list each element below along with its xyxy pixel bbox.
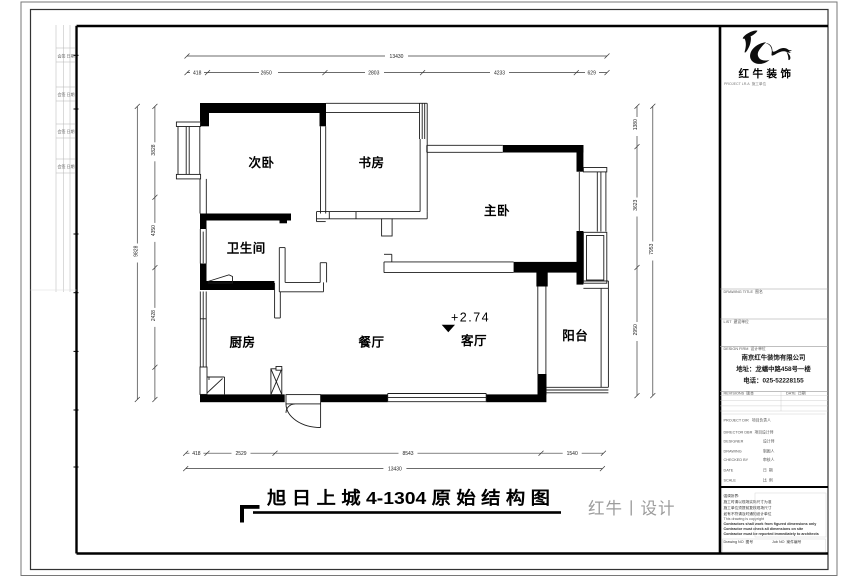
svg-text:2529: 2529 [235, 451, 246, 457]
svg-text:LIST 建设单位: LIST 建设单位 [724, 319, 750, 324]
svg-text:设计师: 设计师 [763, 439, 775, 444]
svg-text:+2.74: +2.74 [451, 311, 490, 325]
svg-text:日期: 日期 [67, 163, 75, 169]
svg-text:PROJECT LR.A 施工单位: PROJECT LR.A 施工单位 [724, 81, 766, 86]
svg-text:日期: 日期 [67, 91, 75, 97]
svg-text:红牛装饰: 红牛装饰 [739, 67, 795, 80]
svg-text:主卧: 主卧 [484, 203, 510, 218]
svg-text:制图人: 制图人 [763, 449, 775, 454]
svg-text:强调所界:: 强调所界: [724, 493, 740, 498]
svg-text:日期: 日期 [67, 128, 75, 134]
svg-text:施工时请以现场实际尺寸为准: 施工时请以现场实际尺寸为准 [724, 499, 772, 504]
svg-text:13430: 13430 [390, 54, 404, 60]
svg-text:日 期: 日 期 [763, 468, 773, 473]
svg-text:2950: 2950 [633, 324, 639, 335]
svg-text:阳台: 阳台 [562, 328, 588, 343]
svg-text:DRAWING TITLE 图名: DRAWING TITLE 图名 [724, 289, 763, 294]
svg-text:2803: 2803 [368, 71, 379, 77]
svg-text:418: 418 [193, 71, 202, 77]
svg-text:厨房: 厨房 [229, 335, 255, 350]
svg-text:DATE 日期: DATE 日期 [786, 390, 806, 395]
svg-text:DESIGN FIRM 设计单位: DESIGN FIRM 设计单位 [724, 346, 766, 351]
svg-text:2650: 2650 [261, 71, 272, 77]
svg-text:日期: 日期 [67, 53, 75, 59]
svg-text:13430: 13430 [388, 467, 402, 473]
svg-text:比 例: 比 例 [763, 478, 773, 483]
svg-text:施工单位须提前复核现场尺寸: 施工单位须提前复核现场尺寸 [724, 505, 772, 510]
svg-text:This drawing is copyright: This drawing is copyright [724, 517, 765, 521]
svg-text:卫生间: 卫生间 [227, 241, 266, 256]
svg-text:会签: 会签 [58, 128, 66, 134]
svg-text:CHECKED BY: CHECKED BY [724, 458, 749, 462]
svg-text:红牛丨设计: 红牛丨设计 [588, 499, 676, 518]
svg-text:3828: 3828 [151, 144, 157, 155]
svg-text:2428: 2428 [151, 310, 157, 321]
svg-text:地址：龙蟠中路458号一楼: 地址：龙蟠中路458号一楼 [736, 364, 811, 373]
svg-text:4350: 4350 [151, 225, 157, 236]
svg-text:如有不符请及时通知设计单位: 如有不符请及时通知设计单位 [724, 511, 772, 516]
svg-text:会签: 会签 [58, 53, 66, 59]
svg-text:SCALE: SCALE [724, 479, 737, 483]
svg-text:DESIGNER: DESIGNER [724, 440, 744, 444]
svg-text:PROJECT DIR 项目负责人: PROJECT DIR 项目负责人 [724, 418, 772, 423]
svg-text:餐厅: 餐厅 [357, 335, 384, 350]
svg-text:DATE: DATE [724, 469, 734, 473]
svg-text:1380: 1380 [633, 119, 639, 130]
svg-text:Job NO 案件编号: Job NO 案件编号 [772, 539, 802, 544]
svg-text:客厅: 客厅 [460, 333, 487, 348]
svg-text:REVISIONS 版本: REVISIONS 版本 [724, 390, 755, 395]
svg-text:旭 日 上 城 4-1304 原 始 结 构 图: 旭 日 上 城 4-1304 原 始 结 构 图 [266, 488, 550, 508]
svg-text:8543: 8543 [402, 451, 413, 457]
svg-text:DIRECTOR DBR 项目设计师: DIRECTOR DBR 项目设计师 [724, 430, 774, 435]
svg-text:审核人: 审核人 [763, 457, 775, 462]
svg-text:DRAWING: DRAWING [724, 450, 742, 454]
svg-text:次卧: 次卧 [248, 155, 274, 170]
svg-text:会签: 会签 [58, 163, 66, 169]
svg-text:1540: 1540 [567, 451, 578, 457]
svg-text:629: 629 [588, 71, 597, 77]
svg-text:Contractor must check all dime: Contractor must check all dimensions on … [724, 527, 804, 531]
svg-text:电话：025-52228155: 电话：025-52228155 [743, 376, 804, 385]
svg-text:会签: 会签 [58, 91, 66, 97]
svg-text:Contractor must be reported im: Contractor must be reported immediately … [724, 532, 819, 536]
svg-text:Drawing NO 图号: Drawing NO 图号 [724, 539, 754, 544]
svg-text:9828: 9828 [133, 245, 139, 256]
svg-text:7953: 7953 [649, 243, 655, 254]
svg-text:书房: 书房 [358, 155, 384, 170]
svg-text:3623: 3623 [633, 199, 639, 210]
svg-text:Contractors shall work from fi: Contractors shall work from figured dime… [724, 522, 818, 526]
svg-text:418: 418 [192, 451, 201, 457]
svg-text:南京红牛装饰有限公司: 南京红牛装饰有限公司 [742, 353, 806, 362]
svg-text:4233: 4233 [494, 71, 505, 77]
